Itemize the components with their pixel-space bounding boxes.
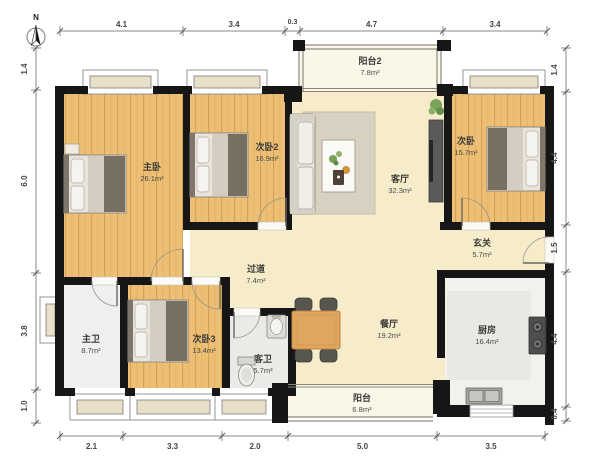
floor-plan-page: 主卧 26.1m² 次卧2 16.9m² 次卧 15.7m² 次卧3 13.4m… (0, 0, 600, 471)
label-bedroom2-area: 16.9m² (255, 154, 279, 163)
label-bedroom-area: 15.7m² (454, 148, 478, 157)
dimensions-top: 4.1 3.4 0.3 4.7 3.4 (57, 19, 550, 36)
stove-icon (529, 317, 546, 354)
window-icon (70, 394, 130, 420)
dim-right-2: 1.5 (550, 242, 559, 254)
dim-right-1: 4.4 (550, 152, 559, 164)
label-dining-room-name: 餐厅 (379, 318, 398, 329)
window-icon (215, 394, 273, 420)
label-living-room-area: 32.3m² (388, 186, 412, 195)
window-icon (130, 394, 217, 420)
dim-bottom-1: 3.3 (167, 442, 179, 451)
sink-icon (267, 315, 286, 338)
bed-icon (128, 300, 188, 362)
label-balcony2-name: 阳台2 (358, 55, 381, 66)
dim-right-0: 1.4 (550, 64, 559, 76)
window-icon (463, 70, 545, 94)
dim-top-1: 3.4 (228, 20, 240, 29)
dim-top-4: 3.4 (489, 20, 501, 29)
sofa-icon (290, 114, 315, 214)
label-kitchen-name: 厨房 (478, 324, 496, 335)
label-bedroom3-name: 次卧3 (192, 333, 215, 344)
kitchen-window-icon (470, 405, 513, 417)
label-bedroom-name: 次卧 (457, 135, 475, 146)
dim-left-0: 1.4 (20, 63, 29, 75)
label-master-bedroom-area: 26.1m² (140, 174, 164, 183)
label-hallway-name: 过道 (247, 263, 265, 274)
compass-icon: N (27, 13, 45, 46)
compass-north-label: N (33, 13, 39, 22)
dim-left-1: 6.0 (20, 175, 29, 187)
dim-top-2: 0.3 (288, 19, 298, 26)
bed-icon (190, 133, 248, 197)
dim-bottom-0: 2.1 (86, 442, 98, 451)
bed-icon (487, 127, 545, 191)
dimensions-left: 1.4 6.0 3.8 1.0 (20, 45, 41, 426)
label-master-bedroom-name: 主卧 (143, 161, 161, 172)
dim-bottom-4: 3.5 (485, 442, 497, 451)
coffee-table-icon (322, 140, 355, 192)
nightstand (65, 144, 79, 154)
label-bedroom2-name: 次卧2 (255, 141, 278, 152)
dim-right-3: 4.4 (550, 333, 559, 345)
label-living-room-name: 客厅 (390, 173, 409, 184)
dim-left-2: 3.8 (20, 325, 29, 337)
kitchen-sink-icon (466, 388, 502, 404)
label-master-bath-name: 主卫 (82, 333, 100, 344)
label-guest-bath-name: 客卫 (253, 353, 272, 364)
label-kitchen-area: 16.4m² (475, 337, 499, 346)
dim-left-3: 1.0 (20, 400, 29, 412)
floor-plan-canvas: 主卧 26.1m² 次卧2 16.9m² 次卧 15.7m² 次卧3 13.4m… (0, 0, 600, 471)
label-bedroom3-area: 13.4m² (192, 346, 216, 355)
label-hallway-area: 7.4m² (246, 276, 266, 285)
dim-top-3: 4.7 (366, 20, 378, 29)
kitchen-counter-area (447, 291, 531, 380)
label-balcony-name: 阳台 (353, 392, 371, 403)
label-guest-bath-area: 5.7m² (253, 366, 273, 375)
dim-top-0: 4.1 (116, 20, 128, 29)
label-entry-area: 5.7m² (472, 250, 492, 259)
label-entry-name: 玄关 (473, 237, 491, 248)
dim-bottom-2: 2.0 (249, 442, 261, 451)
window-icon (187, 70, 267, 94)
window-icon (83, 70, 158, 94)
dim-bottom-3: 5.0 (357, 442, 369, 451)
label-balcony2-area: 7.8m² (360, 68, 380, 77)
dimensions-bottom: 2.1 3.3 2.0 5.0 3.5 (57, 431, 548, 451)
label-dining-room-area: 19.2m² (377, 331, 401, 340)
label-balcony-area: 6.8m² (352, 405, 372, 414)
label-master-bath-area: 8.7m² (81, 346, 101, 355)
dim-right-4: 0.4 (550, 408, 559, 420)
